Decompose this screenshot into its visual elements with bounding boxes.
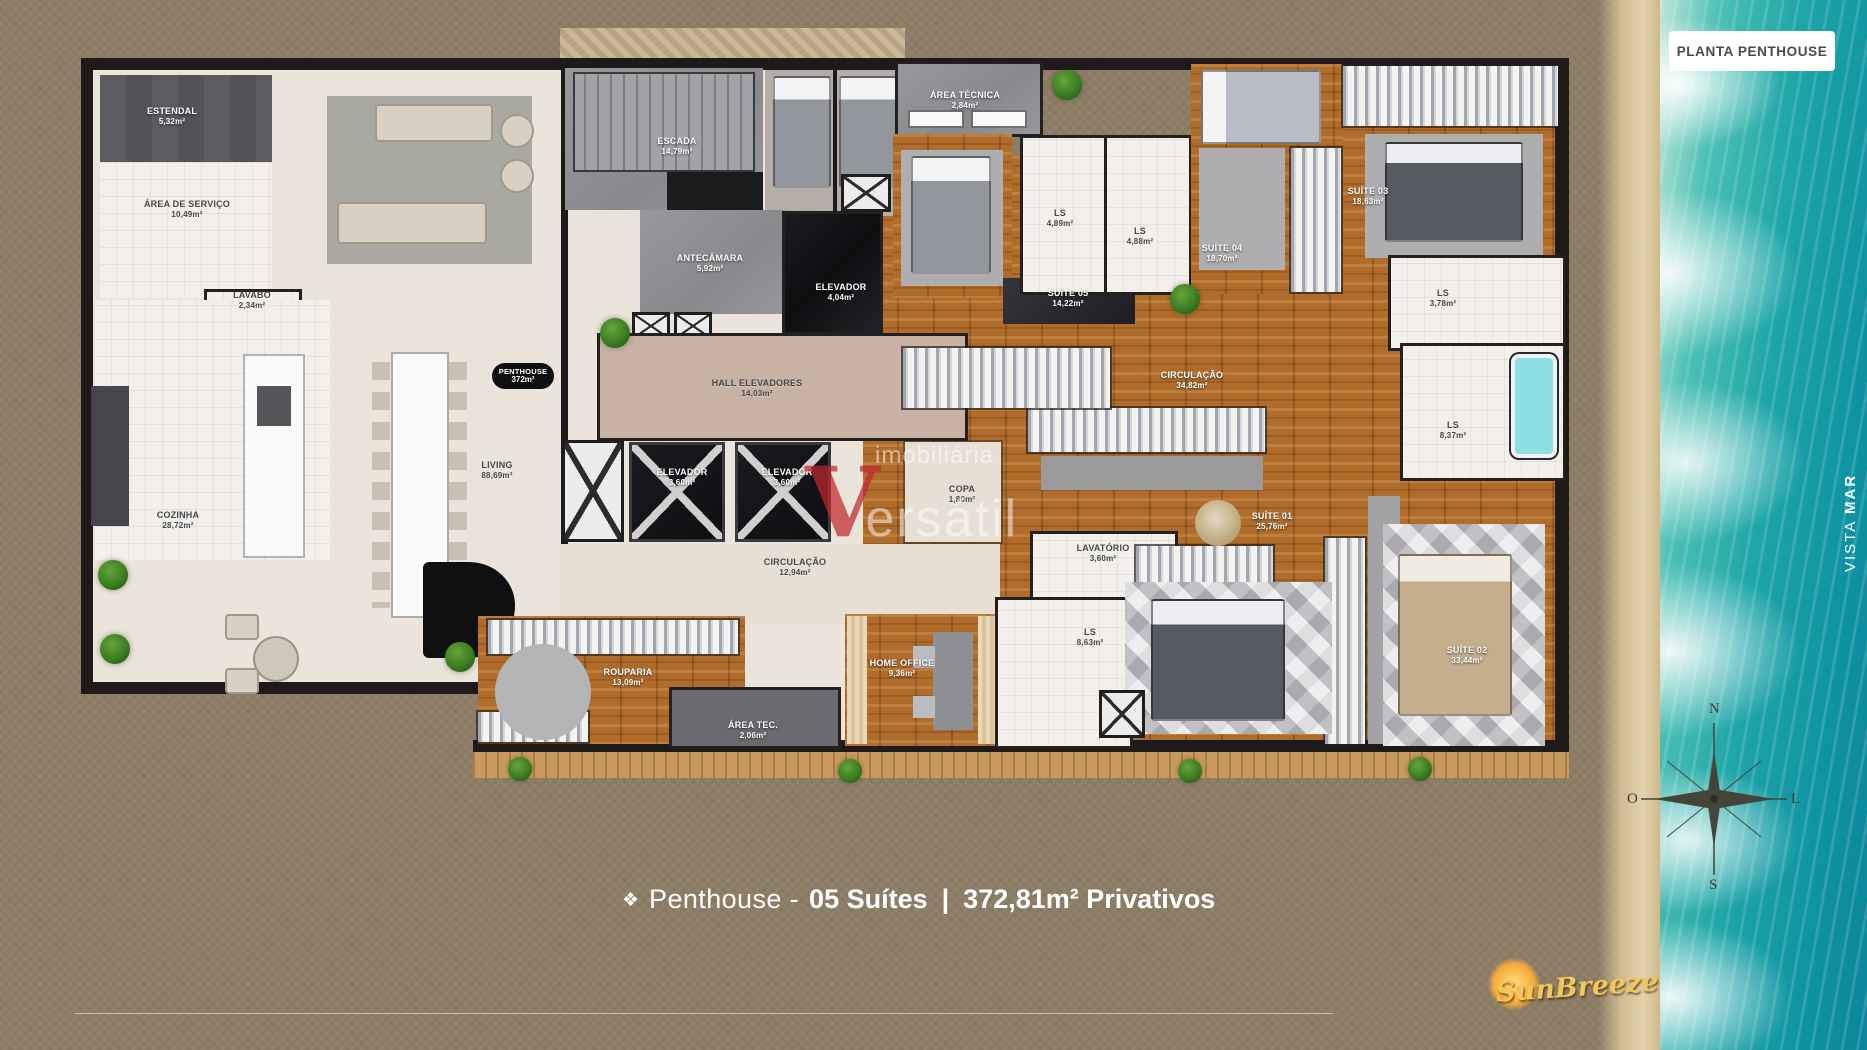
plant-icon xyxy=(445,642,475,672)
compass-s: S xyxy=(1709,877,1717,894)
caption-suites: 05 Suítes xyxy=(809,884,928,915)
plan-zone xyxy=(1107,138,1189,292)
plan-zone xyxy=(1391,258,1563,348)
room-label: COZINHA28,72m² xyxy=(157,510,199,530)
plan-zone xyxy=(81,58,93,694)
caption-private-area: 372,81m² Privativos xyxy=(963,884,1215,915)
caption-prefix: Penthouse - xyxy=(649,884,799,915)
room-label: SUÍTE 0318,63m² xyxy=(1348,186,1389,206)
plan-zone xyxy=(337,202,487,244)
plan-zone xyxy=(735,442,831,542)
plan-zone xyxy=(225,668,259,694)
plan-zone xyxy=(903,348,1110,408)
plan-zone xyxy=(847,616,867,744)
plant-icon xyxy=(98,560,128,590)
plan-zone xyxy=(1343,66,1558,126)
plant-icon xyxy=(1052,70,1082,100)
plan-zone xyxy=(978,616,998,744)
room-label: ANTECÂMARA5,92m² xyxy=(677,253,744,273)
room-label: LS4,88m² xyxy=(1127,226,1154,246)
plan-zone xyxy=(1028,408,1265,452)
plan-zone xyxy=(1201,70,1321,144)
room-label: LS8,37m² xyxy=(1440,420,1467,440)
caption-separator: | xyxy=(942,884,950,915)
plan-zone xyxy=(913,696,935,718)
plan-zone xyxy=(833,66,837,212)
plan-zone xyxy=(500,114,534,148)
plan-zone xyxy=(773,76,831,188)
room-label: HOME OFFICE9,36m² xyxy=(870,658,935,678)
plan-title-label: PLANTA PENTHOUSE xyxy=(1677,44,1828,59)
room-label: ELEVADOR3,60m² xyxy=(657,467,708,487)
room-label: LAVABO2,34m² xyxy=(233,290,271,310)
caption-diamond-icon: ❖ xyxy=(622,889,639,912)
plan-zone xyxy=(845,614,1000,746)
plan-zone xyxy=(225,614,259,640)
plan-zone xyxy=(257,386,291,426)
plan-zone xyxy=(1099,690,1145,738)
plan-zone xyxy=(1291,148,1341,292)
plan-zone xyxy=(495,644,591,740)
room-label: COPA1,80m² xyxy=(949,484,976,504)
plan-zone xyxy=(91,386,129,526)
plan-zone xyxy=(372,362,390,608)
penthouse-area-badge: PENTHOUSE 372m² xyxy=(492,363,554,389)
room-label: ELEVADOR3,60m² xyxy=(762,467,813,487)
plan-zone xyxy=(1041,456,1263,490)
plan-zone xyxy=(500,159,534,193)
compass-n: N xyxy=(1709,701,1720,718)
plan-zone xyxy=(667,172,763,210)
plan-zone xyxy=(1398,554,1512,716)
room-label: ESTENDAL5,32m² xyxy=(147,106,197,126)
caption: ❖ Penthouse - 05 Suítes | 372,81m² Priva… xyxy=(622,884,1215,915)
plan-zone xyxy=(910,112,962,126)
plan-zone xyxy=(911,156,991,274)
compass-o: O xyxy=(1627,791,1638,808)
room-label: SUÍTE 0514,22m² xyxy=(1048,288,1089,308)
plan-zone xyxy=(1511,354,1557,458)
plan-zone xyxy=(1151,599,1285,721)
penthouse-badge-area: 372m² xyxy=(492,376,554,384)
room-label: SUÍTE 0125,76m² xyxy=(1252,511,1293,531)
room-label: ÁREA TEC.2,06m² xyxy=(728,720,778,740)
plan-zone xyxy=(1195,500,1241,546)
room-label: SUÍTE 0233,44m² xyxy=(1447,645,1488,665)
plan-zone xyxy=(375,104,493,142)
plan-zone xyxy=(473,752,1569,778)
plan-zone xyxy=(841,174,891,212)
vista-mar-tag: VISTA MAR xyxy=(1834,458,1867,588)
compass-graphic xyxy=(1627,703,1802,895)
plant-icon xyxy=(1178,759,1202,783)
plant-icon xyxy=(100,634,130,664)
room-label: ESCADA14,79m² xyxy=(657,136,696,156)
plant-icon xyxy=(1170,284,1200,314)
plant-icon xyxy=(508,757,532,781)
room-label: LIVING88,69m² xyxy=(481,460,512,480)
plant-icon xyxy=(1408,757,1432,781)
room-label: ÁREA TÉCNICA2,84m² xyxy=(930,90,1000,110)
room-label: HALL ELEVADORES14,03m² xyxy=(712,378,803,398)
compass-l: L xyxy=(1791,791,1800,808)
room-label: ÁREA DE SERVIÇO10,49m² xyxy=(144,199,230,219)
room-label: LS8,63m² xyxy=(1077,627,1104,647)
plan-zone xyxy=(973,112,1025,126)
bottom-divider-line xyxy=(75,1013,1333,1014)
room-label: CIRCULAÇÃO12,94m² xyxy=(764,557,827,577)
compass-rose: N S O L xyxy=(1627,703,1802,895)
plan-zone xyxy=(839,76,897,188)
plan-zone xyxy=(1385,142,1523,242)
brand-logo: SunBreeze xyxy=(1484,950,1654,1035)
plan-zone xyxy=(933,632,973,730)
plant-icon xyxy=(838,759,862,783)
plan-zone xyxy=(100,162,272,298)
plant-icon xyxy=(600,318,630,348)
room-label: LS4,89m² xyxy=(1047,208,1074,228)
plan-zone xyxy=(629,442,725,542)
room-label: ROUPARIA13,09m² xyxy=(604,667,653,687)
room-label: CIRCULAÇÃO34,82m² xyxy=(1161,370,1224,390)
plan-zone xyxy=(785,214,880,332)
room-label: LAVATÓRIO3,60m² xyxy=(1077,543,1130,563)
plan-zone xyxy=(253,636,299,682)
room-label: ELEVADOR4,04m² xyxy=(816,282,867,302)
mar-word: MAR xyxy=(1842,474,1859,514)
plan-zone xyxy=(562,440,624,542)
vista-word: VISTA xyxy=(1842,520,1859,572)
plan-zone xyxy=(573,72,755,172)
room-label: LS3,78m² xyxy=(1430,288,1457,308)
floor-plan xyxy=(75,56,1575,780)
room-label: SUÍTE 0418,70m² xyxy=(1202,243,1243,263)
plan-title-badge: PLANTA PENTHOUSE xyxy=(1669,31,1835,71)
planta-penthouse-page: PENTHOUSE 372m² ESTENDAL5,32m²ÁREA DE SE… xyxy=(0,0,1867,1050)
